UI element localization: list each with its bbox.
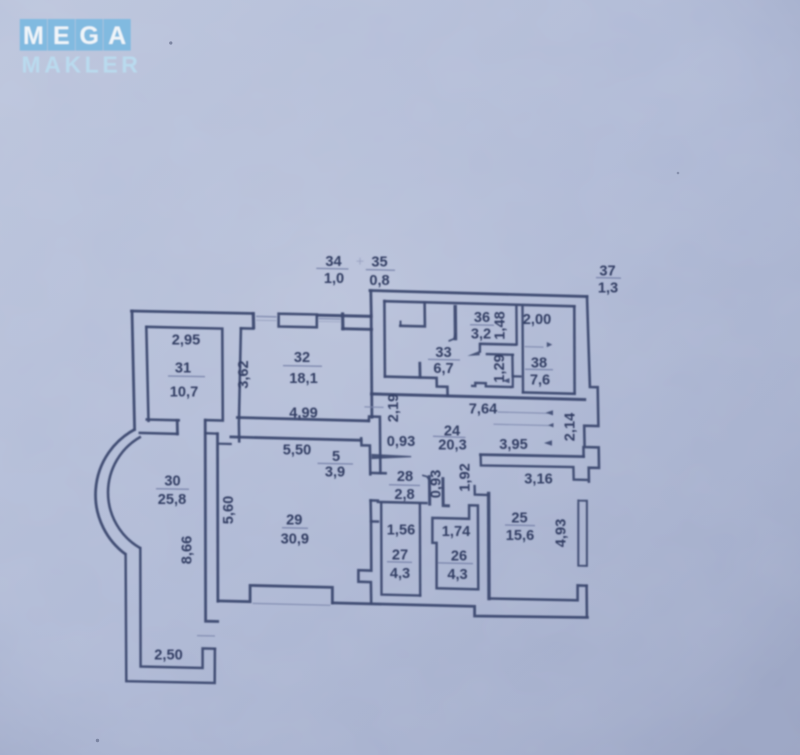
svg-text:32: 32 xyxy=(294,350,310,366)
svg-text:5,60: 5,60 xyxy=(221,496,237,524)
svg-text:7,64: 7,64 xyxy=(469,402,498,418)
svg-text:38: 38 xyxy=(531,356,547,372)
svg-text:1,74: 1,74 xyxy=(442,524,471,540)
svg-text:0,93: 0,93 xyxy=(387,434,415,450)
svg-text:2,95: 2,95 xyxy=(172,333,200,349)
svg-text:3,62: 3,62 xyxy=(236,360,252,388)
svg-text:G: G xyxy=(79,22,98,50)
svg-text:29: 29 xyxy=(286,513,302,529)
svg-text:15,6: 15,6 xyxy=(506,528,534,544)
svg-text:26: 26 xyxy=(451,549,467,565)
svg-text:4,3: 4,3 xyxy=(447,567,467,583)
svg-text:27: 27 xyxy=(392,548,408,564)
svg-text:2,00: 2,00 xyxy=(523,312,551,328)
svg-text:2,8: 2,8 xyxy=(394,487,414,503)
svg-text:37: 37 xyxy=(599,264,615,280)
svg-text:7,6: 7,6 xyxy=(530,373,550,389)
svg-text:1,56: 1,56 xyxy=(387,523,415,539)
svg-text:30: 30 xyxy=(164,474,180,490)
svg-text:0,8: 0,8 xyxy=(369,273,389,289)
svg-text:33: 33 xyxy=(435,345,451,361)
svg-text:4,99: 4,99 xyxy=(289,406,317,422)
svg-text:2,50: 2,50 xyxy=(154,648,182,664)
svg-text:5: 5 xyxy=(332,449,340,465)
svg-text:1,92: 1,92 xyxy=(458,463,474,491)
svg-text:A: A xyxy=(108,22,126,50)
svg-text:34: 34 xyxy=(325,254,342,270)
svg-text:8,66: 8,66 xyxy=(180,536,196,564)
svg-text:25: 25 xyxy=(511,511,527,527)
svg-text:MAKLER: MAKLER xyxy=(22,52,142,78)
svg-text:M: M xyxy=(23,22,44,50)
svg-text:30,9: 30,9 xyxy=(281,532,309,548)
svg-text:1,3: 1,3 xyxy=(598,281,618,297)
svg-text:2,19: 2,19 xyxy=(386,394,402,422)
svg-text:3,9: 3,9 xyxy=(325,465,345,481)
svg-text:36: 36 xyxy=(474,310,490,326)
svg-text:28: 28 xyxy=(397,469,413,485)
svg-text:4,3: 4,3 xyxy=(390,566,410,582)
svg-text:3,2: 3,2 xyxy=(471,327,491,343)
svg-text:E: E xyxy=(53,22,70,50)
svg-text:25,8: 25,8 xyxy=(158,492,186,508)
svg-text:20,3: 20,3 xyxy=(438,438,466,454)
svg-text:1,29: 1,29 xyxy=(492,354,508,382)
svg-text:1,0: 1,0 xyxy=(324,271,344,287)
svg-text:5,50: 5,50 xyxy=(283,443,311,459)
svg-text:18,1: 18,1 xyxy=(289,371,317,387)
svg-text:35: 35 xyxy=(371,255,387,271)
svg-text:3,16: 3,16 xyxy=(524,472,552,488)
svg-text:6,7: 6,7 xyxy=(433,361,453,377)
svg-text:0,93: 0,93 xyxy=(429,470,445,498)
svg-text:2,14: 2,14 xyxy=(563,412,579,441)
svg-text:10,7: 10,7 xyxy=(170,385,198,401)
svg-text:3,95: 3,95 xyxy=(499,437,527,453)
svg-text:1,48: 1,48 xyxy=(493,311,509,339)
svg-text:4,93: 4,93 xyxy=(554,519,570,547)
svg-text:31: 31 xyxy=(175,361,191,377)
